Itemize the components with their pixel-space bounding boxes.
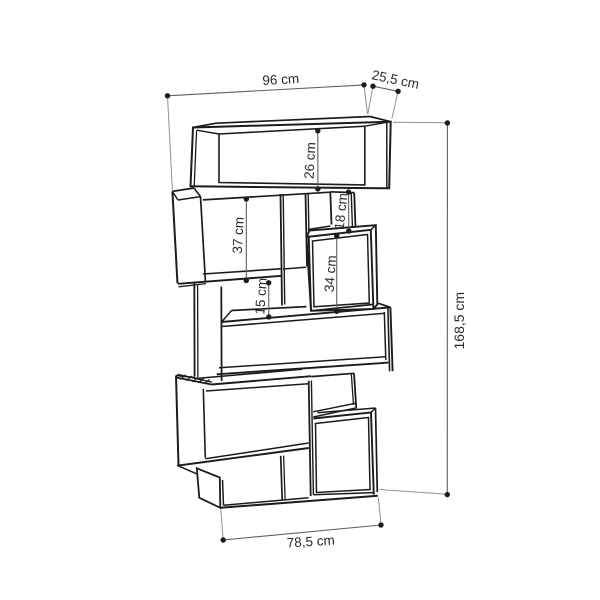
svg-text:26 cm: 26 cm [302, 142, 319, 180]
svg-text:168,5 cm: 168,5 cm [451, 292, 467, 350]
svg-text:15 cm: 15 cm [252, 277, 270, 315]
svg-text:34 cm: 34 cm [322, 255, 340, 293]
svg-text:96 cm: 96 cm [262, 71, 300, 88]
svg-text:37 cm: 37 cm [230, 217, 247, 255]
svg-text:78,5 cm: 78,5 cm [286, 533, 335, 551]
